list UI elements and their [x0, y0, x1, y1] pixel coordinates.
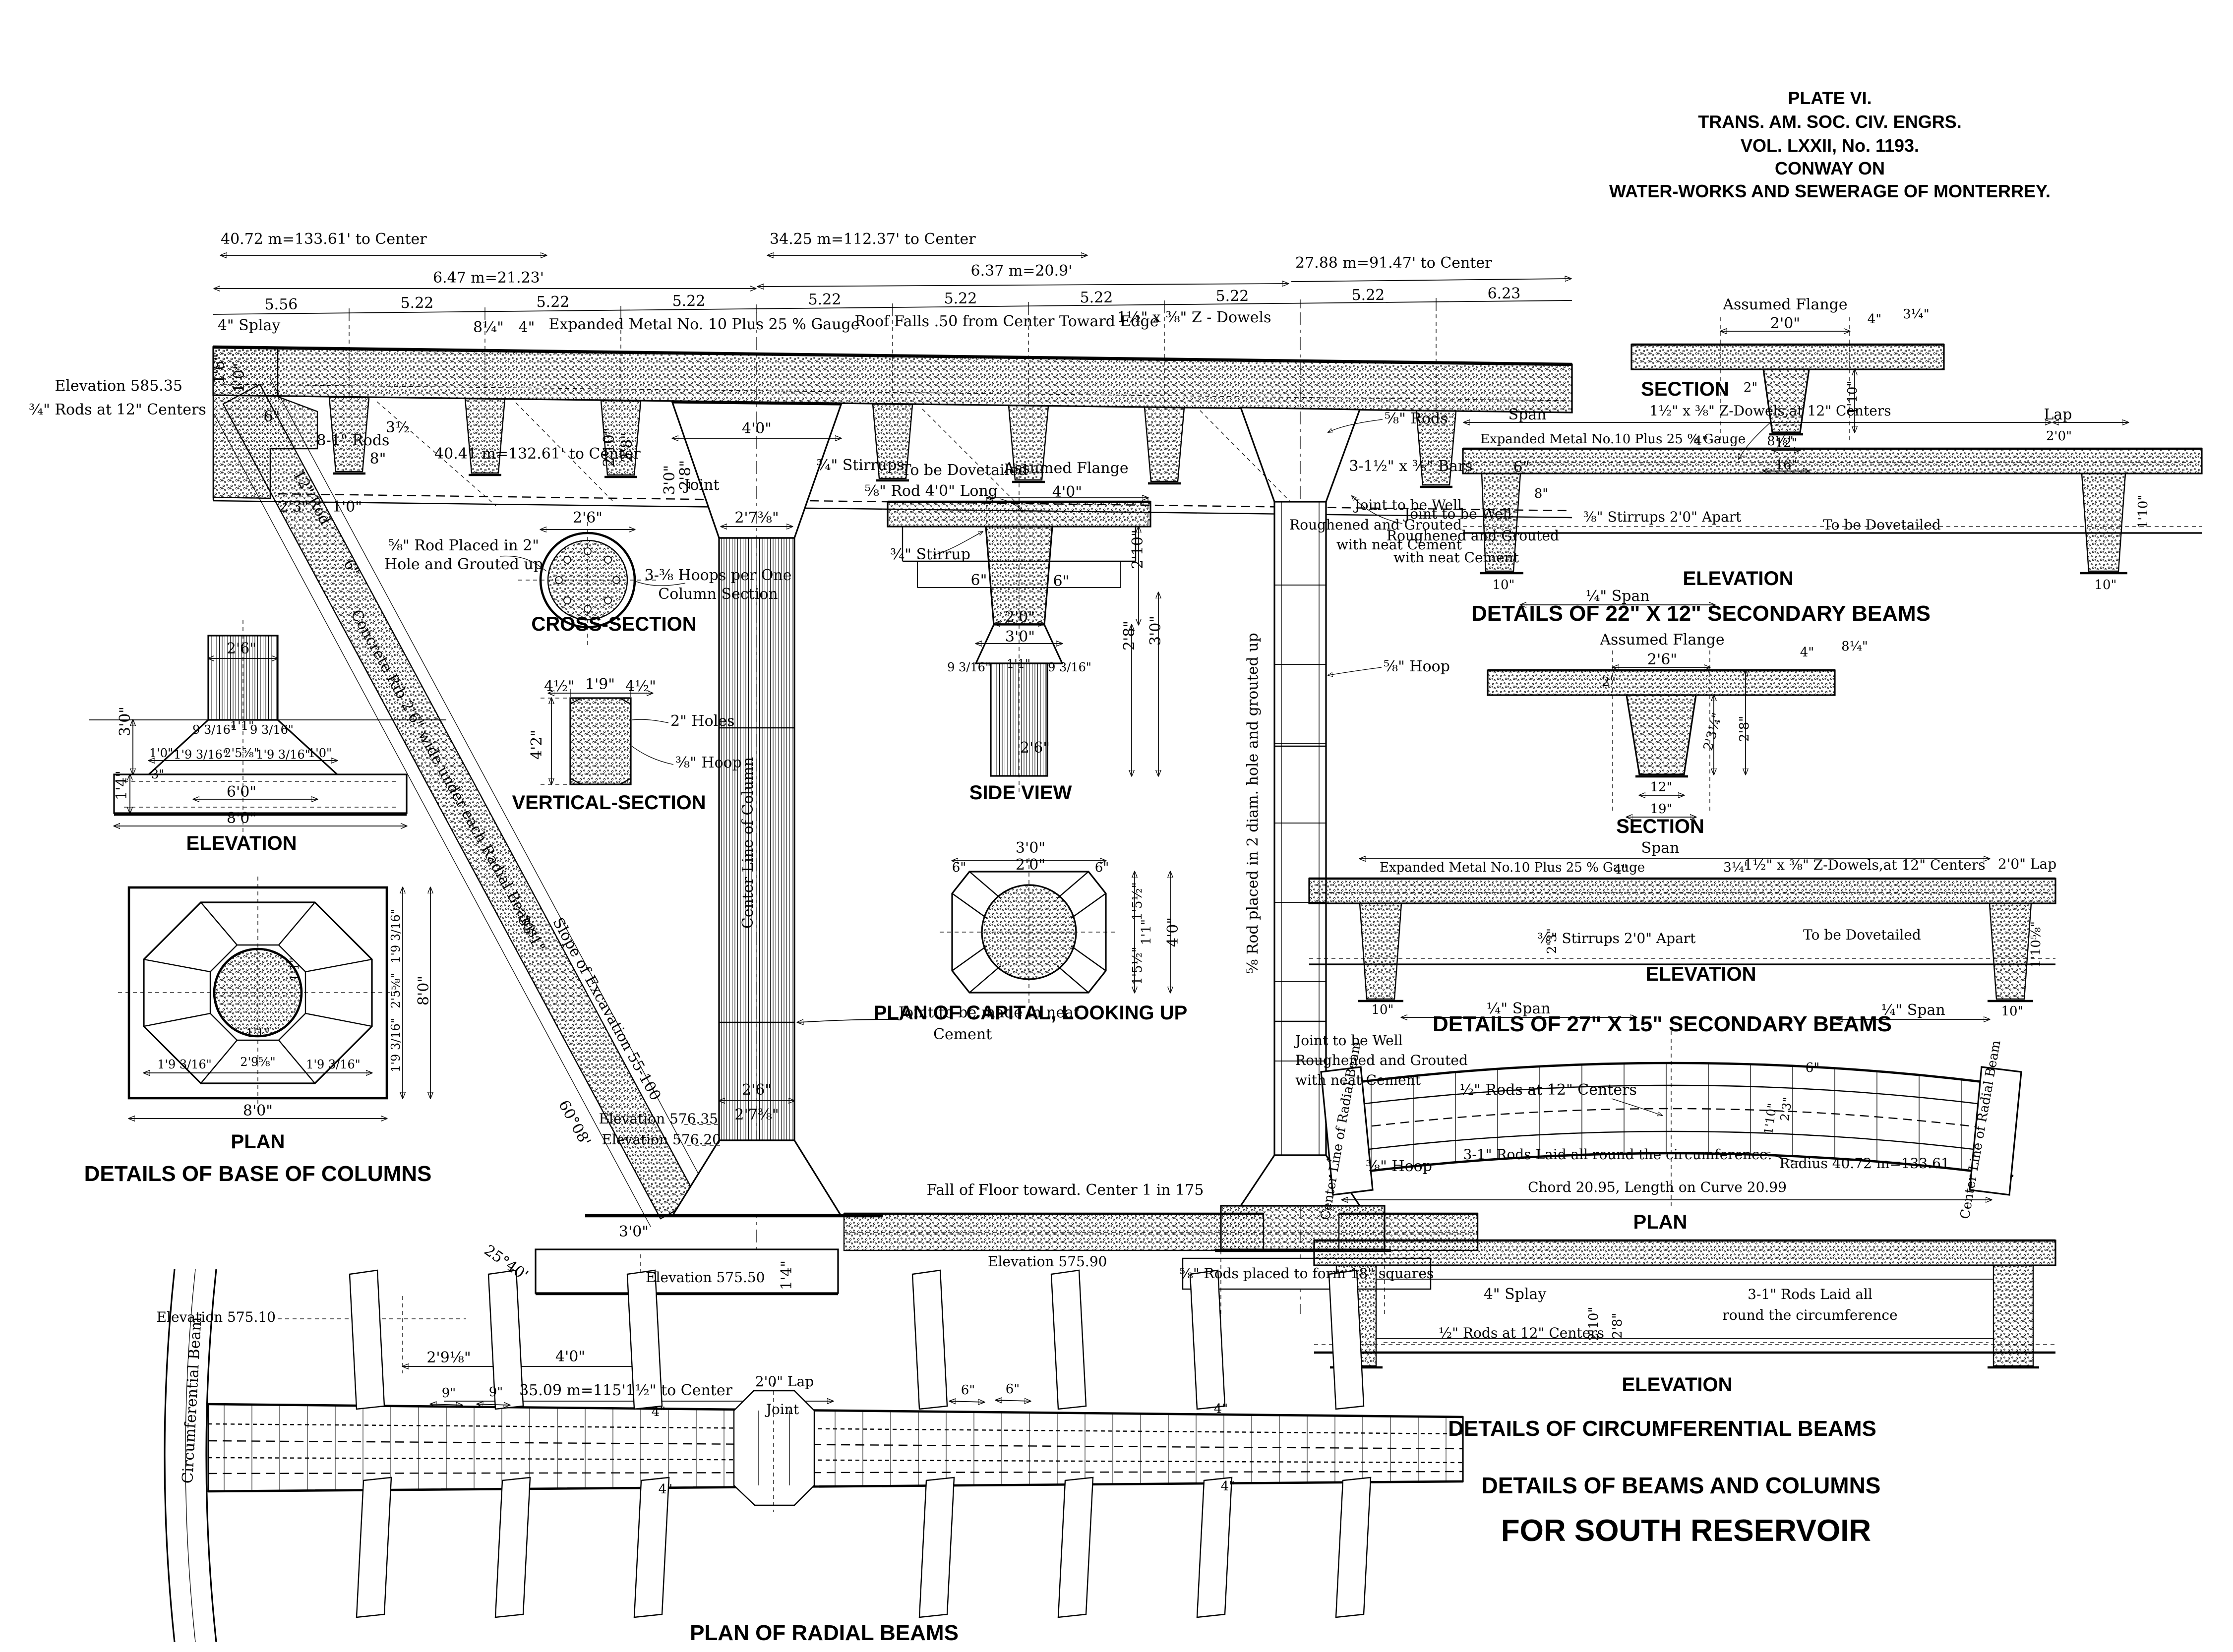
- annotation-label: 4'0": [555, 1348, 585, 1365]
- circ-elevation-caption: ELEVATION: [1622, 1374, 1733, 1396]
- annotation-label: 2'8": [618, 432, 636, 462]
- annotation-label: Expanded Metal No.10 Plus 25 % Gauge: [1380, 860, 1645, 875]
- annotation-label: ¼" Span: [1585, 588, 1649, 605]
- annotation-label: 10": [1492, 578, 1514, 592]
- annotation-label: ⅜" Hoop: [1366, 1158, 1432, 1175]
- annotation-label: 1'5½": [1130, 882, 1145, 920]
- annotation-label: 2'10": [1129, 530, 1147, 569]
- annotation-label: 19": [1650, 802, 1672, 817]
- annotation-label: 8-1" Rods: [317, 432, 390, 449]
- annotation-label: 8'0": [243, 1102, 273, 1120]
- annotation-label: 4": [659, 1482, 673, 1497]
- annotation-label: Assumed Flange: [1722, 296, 1847, 313]
- base-elevation-caption: ELEVATION: [186, 832, 297, 854]
- annotation-label: Hole and Grouted up: [384, 556, 543, 573]
- annotation-label: ½" Rods at 12" Centers: [1439, 1325, 1604, 1341]
- annotation-label: Cement: [933, 1026, 992, 1043]
- circ-details-caption: DETAILS OF CIRCUMFERENTIAL BEAMS: [1448, 1416, 1876, 1441]
- annotation-label: 2'8": [1737, 716, 1752, 742]
- annotation-label: 4½": [544, 678, 575, 695]
- annotation-label: 1'1": [1007, 657, 1030, 671]
- annotation-label: 8¼": [1841, 639, 1868, 654]
- annotation-label: 40.72 m=133.61' to Center: [221, 231, 427, 248]
- annotation-label: 9 3/16": [250, 723, 294, 737]
- annotation-label: 3½: [386, 419, 410, 436]
- annotation-label: 4": [519, 319, 535, 336]
- annotation-label: 2'3": [1778, 1096, 1795, 1122]
- annotation-label: with neat Cement: [1336, 536, 1462, 553]
- annotation-label: 2'0": [2046, 429, 2072, 444]
- annotation-label: Elevation 585.35: [55, 377, 182, 395]
- annotation-label: ¾" Stirrup: [890, 546, 970, 563]
- annotation-label: 1'4": [113, 770, 130, 800]
- drawing-sheet: PLATE VI. TRANS. AM. SOC. CIV. ENGRS. VO…: [0, 0, 2233, 1652]
- annotation-label: 10": [1371, 1003, 1393, 1017]
- annotation-label: 8'0": [415, 976, 432, 1005]
- annotation-label: Joint to be made in neat: [897, 1004, 1080, 1021]
- annotation-label: 1'9 3/16": [256, 748, 310, 762]
- annotation-label: 1'9 3/16": [157, 1058, 212, 1071]
- annotation-label: 6": [1513, 459, 1530, 476]
- annotation-label: 5.22: [537, 294, 570, 311]
- annotation-label: 2'3¼": [1701, 711, 1725, 753]
- annotation-label: ⅝" Rods placed to form 18" squares: [1180, 1265, 1434, 1282]
- annotation-label: 3'0": [1005, 628, 1035, 646]
- annotation-label: 6.23: [1488, 285, 1521, 302]
- annotation-label: Joint: [765, 1401, 799, 1417]
- annotation-label: 2'10": [1586, 1307, 1601, 1341]
- annotation-label: 6": [264, 408, 280, 425]
- elevation-22-caption: ELEVATION: [1683, 568, 1794, 590]
- section-22-caption: SECTION: [1641, 378, 1729, 400]
- annotation-label: round the circumference: [1722, 1307, 1897, 1323]
- annotation-label: ⅝ Rod placed in 2 diam. hole and grouted…: [1244, 633, 1262, 973]
- annotation-label: 3-1½" x ⅜" Bars: [1349, 458, 1472, 475]
- annotation-label: 1'0": [308, 746, 332, 760]
- details-22-caption: DETAILS OF 22" X 12" SECONDARY BEAMS: [1471, 601, 1931, 626]
- annotation-label: ⅝" Hoop: [1384, 658, 1450, 675]
- radial-beams-plan: PLAN OF RADIAL BEAMS: [165, 1269, 1463, 1645]
- annotation-label: Joint to be Well: [1353, 497, 1462, 513]
- annotation-label: Column Section: [658, 586, 778, 603]
- annotation-label: 1'9": [585, 676, 615, 693]
- annotation-label: ⅜" Stirrups 2'0" Apart: [1583, 509, 1742, 525]
- annotation-label: 3'0": [661, 465, 678, 495]
- radial-plan-caption: PLAN OF RADIAL BEAMS: [690, 1621, 959, 1645]
- annotation-label: 2'6": [1647, 651, 1677, 668]
- annotation-label: 3-⅜ Hoops per One: [645, 567, 792, 584]
- annotation-label: 2'9⅛": [426, 1349, 471, 1366]
- annotation-label: 5.22: [1080, 289, 1113, 306]
- annotation-label: 2'3": [1545, 928, 1560, 954]
- society-name: TRANS. AM. SOC. CIV. ENGRS.: [1698, 112, 1961, 132]
- author-line: CONWAY ON: [1775, 158, 1885, 178]
- annotation-label: ¾" Rods at 12" Centers: [29, 401, 206, 418]
- annotation-label: Assumed Flange: [1003, 460, 1128, 477]
- annotation-label: 2": [1602, 675, 1616, 690]
- annotation-label: 12": [1650, 780, 1672, 795]
- annotation-label: 6": [961, 1383, 975, 1398]
- annotation-label: 16": [1775, 458, 1797, 472]
- annotation-label: ¼" Span: [1881, 1002, 1945, 1019]
- annotation-label: 1'6": [211, 354, 228, 384]
- annotation-label: 6": [1053, 573, 1070, 590]
- annotation-label: 4": [1214, 1402, 1228, 1416]
- annotation-label: 2'0" Lap: [755, 1373, 814, 1390]
- annotation-label: Span: [1509, 406, 1547, 423]
- annotation-label: 4" Splay: [1484, 1286, 1547, 1303]
- annotation-label: 60°08': [555, 1097, 594, 1149]
- annotation-label: 1'9 3/16": [174, 748, 228, 762]
- annotation-label: 3'0": [1016, 839, 1045, 857]
- annotation-label: Roughened and Grouted: [1295, 1052, 1468, 1068]
- annotation-label: 8": [1534, 486, 1549, 501]
- annotation-label: 2'8": [677, 460, 694, 490]
- annotation-label: 1'9 3/16": [389, 1018, 403, 1072]
- annotation-label: 10": [2001, 1004, 2023, 1019]
- plate-number: PLATE VI.: [1788, 88, 1871, 108]
- annotation-label: 1'10": [1761, 1103, 1780, 1136]
- annotation-label: Span: [1641, 839, 1680, 857]
- annotation-label: 1'1": [288, 957, 302, 981]
- annotation-label: 3¼": [1903, 307, 1930, 322]
- annotation-label: ⅜" Stirrups 2'0" Apart: [1538, 930, 1696, 946]
- annotation-label: 4": [1868, 312, 1882, 327]
- annotation-label: 3'0": [117, 707, 134, 736]
- annotation-label: 6": [1006, 1382, 1020, 1397]
- annotation-label: ¼" Span: [1486, 1000, 1550, 1017]
- annotation-label: 1'10⅝": [2029, 921, 2044, 968]
- annotation-label: 2'7⅜": [734, 1106, 779, 1123]
- annotation-label: Elevation 575.90: [988, 1253, 1107, 1270]
- annotation-label: Center Line of Column: [739, 757, 757, 929]
- title-block: PLATE VI. TRANS. AM. SOC. CIV. ENGRS. VO…: [1609, 88, 2051, 201]
- annotation-label: 2'8": [1121, 621, 1138, 650]
- annotation-label: 35.09 m=115'1½" to Center: [519, 1382, 733, 1399]
- annotation-label: 8⅛": [1767, 434, 1794, 449]
- footer-line2: FOR SOUTH RESERVOIR: [1501, 1514, 1871, 1548]
- annotation-label: 2'6": [573, 509, 603, 527]
- vertical-section-caption: VERTICAL-SECTION: [512, 792, 706, 814]
- annotation-label: 2'5⅝": [224, 746, 259, 760]
- annotation-label: 3'0": [1147, 616, 1164, 646]
- annotation-label: 1'0": [332, 498, 362, 516]
- footer-title: DETAILS OF BEAMS AND COLUMNS FOR SOUTH R…: [1482, 1473, 1881, 1548]
- annotation-label: 4" Splay: [218, 317, 281, 334]
- cross-section-caption: CROSS-SECTION: [531, 613, 696, 635]
- annotation-label: 8'0": [227, 810, 256, 827]
- annotation-label: Lap: [2044, 406, 2072, 423]
- annotation-label: 2'6": [227, 640, 256, 657]
- annotation-label: 6.37 m=20.9': [971, 262, 1073, 280]
- annotation-label: ⅜" Hoop: [675, 754, 742, 771]
- subject-line: WATER-WORKS AND SEWERAGE OF MONTERREY.: [1609, 181, 2051, 201]
- annotation-label: 2": [1744, 380, 1758, 395]
- annotation-label: Fall of Floor toward. Center 1 in 175: [927, 1181, 1204, 1199]
- annotation-label: 4½": [625, 678, 656, 695]
- annotation-label: To be Dovetailed: [1823, 517, 1941, 533]
- annotation-label: Elevation 575.10: [157, 1309, 276, 1325]
- annotation-label: 3": [151, 767, 164, 781]
- annotation-label: 4'2": [528, 730, 545, 760]
- annotation-label: 1'0": [231, 363, 248, 393]
- annotation-label: 2'5⅝": [389, 973, 403, 1008]
- annotation-label: 1½" x ⅜" Z-Dowels,at 12" Centers: [1744, 857, 1985, 873]
- volume-number: VOL. LXXII, No. 1193.: [1741, 135, 1919, 156]
- annotation-label: 6": [971, 572, 987, 589]
- annotation-label: 2'10": [601, 427, 618, 467]
- annotation-label: 2'7⅜": [734, 509, 779, 527]
- annotation-label: 5.22: [1352, 287, 1385, 304]
- annotation-label: 8¼": [473, 319, 504, 336]
- beams-22x12-details: SECTION ELEVATION DETAILS OF 22" X 12" S…: [1463, 317, 2202, 626]
- annotation-label: 6.47 m=21.23': [433, 269, 544, 287]
- annotation-label: 5.22: [401, 295, 434, 312]
- annotation-label: 4'0": [1052, 483, 1082, 501]
- annotation-label: 2" Holes: [670, 712, 734, 730]
- annotation-label: 1'1": [1139, 919, 1154, 945]
- annotation-label: 5.56: [265, 296, 298, 313]
- annotation-label: To be Dovetailed: [1803, 927, 1921, 943]
- annotation-label: Roof Falls .50 from Center Toward Edge: [854, 313, 1158, 330]
- annotation-label: 6": [952, 860, 966, 875]
- base-plan-caption: PLAN: [231, 1131, 285, 1153]
- annotation-label: 1'1": [246, 1026, 270, 1040]
- annotation-label: 34.25 m=112.37' to Center: [770, 231, 976, 248]
- annotation-label: 6": [1806, 1061, 1820, 1075]
- annotation-label: Elevation 576.20: [602, 1131, 721, 1148]
- annotation-label: 4": [1694, 434, 1708, 449]
- annotation-label: 2'0": [1005, 608, 1035, 626]
- annotation-label: 2'0" Lap: [1998, 856, 2056, 872]
- annotation-label: 27.88 m=91.47' to Center: [1295, 254, 1492, 272]
- annotation-label: 2'0": [1016, 856, 1045, 874]
- annotation-label: 6'0": [227, 783, 256, 801]
- annotation-label: 4'0": [1164, 917, 1182, 947]
- engineering-drawing: PLATE VI. TRANS. AM. SOC. CIV. ENGRS. VO…: [0, 0, 2233, 1652]
- annotation-label: 2'6": [1020, 739, 1050, 757]
- side-view-caption: SIDE VIEW: [969, 782, 1072, 804]
- base-details-caption: DETAILS OF BASE OF COLUMNS: [84, 1162, 432, 1186]
- annotation-label: 4'0": [742, 420, 772, 437]
- annotation-label: 9 3/16": [947, 660, 991, 674]
- annotation-label: Assumed Flange: [1599, 631, 1724, 649]
- annotation-label: 9": [489, 1385, 503, 1400]
- annotation-label: 4": [1614, 862, 1628, 877]
- annotation-label: 4": [1800, 645, 1814, 660]
- annotation-label: 10": [2094, 578, 2116, 592]
- annotation-label: ¾" Stirrups: [816, 457, 904, 474]
- annotation-label: 4": [1221, 1479, 1235, 1494]
- annotation-label: Roughened and Grouted: [1289, 517, 1462, 533]
- annotation-label: 5.22: [808, 291, 842, 308]
- annotation-label: ½" Rods at 12" Centers: [1459, 1081, 1637, 1099]
- annotation-label: 3'0": [619, 1223, 649, 1240]
- annotation-label: 3-1" Rods Laid all: [1748, 1286, 1872, 1302]
- annotation-label: Elevation 575.50: [646, 1269, 765, 1286]
- annotation-label: 2'8": [1610, 1313, 1625, 1339]
- annotation-label: Radius 40.72 m=133.61: [1779, 1155, 1950, 1172]
- section-27-caption: SECTION: [1616, 816, 1704, 837]
- annotation-label: ⅝" Rods: [1385, 410, 1448, 427]
- annotation-label: Elevation 576.35: [599, 1111, 718, 1127]
- annotation-label: 1'9 3/16": [389, 909, 403, 963]
- annotation-label: 1'9 3/16": [306, 1058, 361, 1071]
- annotation-label: 8": [370, 450, 386, 468]
- annotation-label: 9 3/16": [1048, 660, 1091, 674]
- annotation-label: ⅝" Rod Placed in 2": [388, 537, 539, 554]
- annotation-label: 1'4": [778, 1260, 795, 1290]
- annotation-label: Circumferential Beam.: [179, 1312, 205, 1484]
- annotation-label: 2'6": [742, 1081, 772, 1099]
- annotation-label: 1½" x ⅜" Z-Dowels,at 12" Centers: [1649, 403, 1891, 419]
- annotation-label: 5.22: [944, 290, 977, 307]
- annotation-label: 9": [442, 1386, 456, 1401]
- annotation-label: 4": [652, 1405, 666, 1419]
- elevation-27-caption: ELEVATION: [1646, 963, 1756, 985]
- annotation-label: 3-1" Rods Laid all round the circumferen…: [1463, 1146, 1772, 1163]
- annotation-label: 1'10": [2136, 495, 2151, 529]
- annotation-label: 1½" x ⅜" Z - Dowels: [1117, 309, 1271, 326]
- annotation-label: 2'0": [1770, 315, 1800, 332]
- circ-plan-caption: PLAN: [1633, 1211, 1688, 1233]
- annotation-label: 6": [1095, 860, 1109, 875]
- annotation-label: ⅝" Rod 4'0" Long: [865, 482, 998, 500]
- annotation-label: 2'9⅝": [240, 1055, 275, 1069]
- annotation-label: 5.22: [1216, 288, 1249, 305]
- beams-27x15-details: SECTION ELEVATION DETAILS OF 27" X 15" S…: [1309, 650, 2055, 1036]
- annotation-label: 1'0": [149, 746, 173, 760]
- footer-line1: DETAILS OF BEAMS AND COLUMNS: [1482, 1473, 1881, 1498]
- annotation-label: 1'5½": [1130, 946, 1145, 985]
- annotation-label: Expanded Metal No. 10 Plus 25 % Gauge: [549, 316, 860, 333]
- annotation-label: Chord 20.95, Length on Curve 20.99: [1528, 1179, 1787, 1195]
- annotation-label: 5.22: [672, 293, 706, 310]
- annotation-label: 9 3/16": [192, 723, 236, 737]
